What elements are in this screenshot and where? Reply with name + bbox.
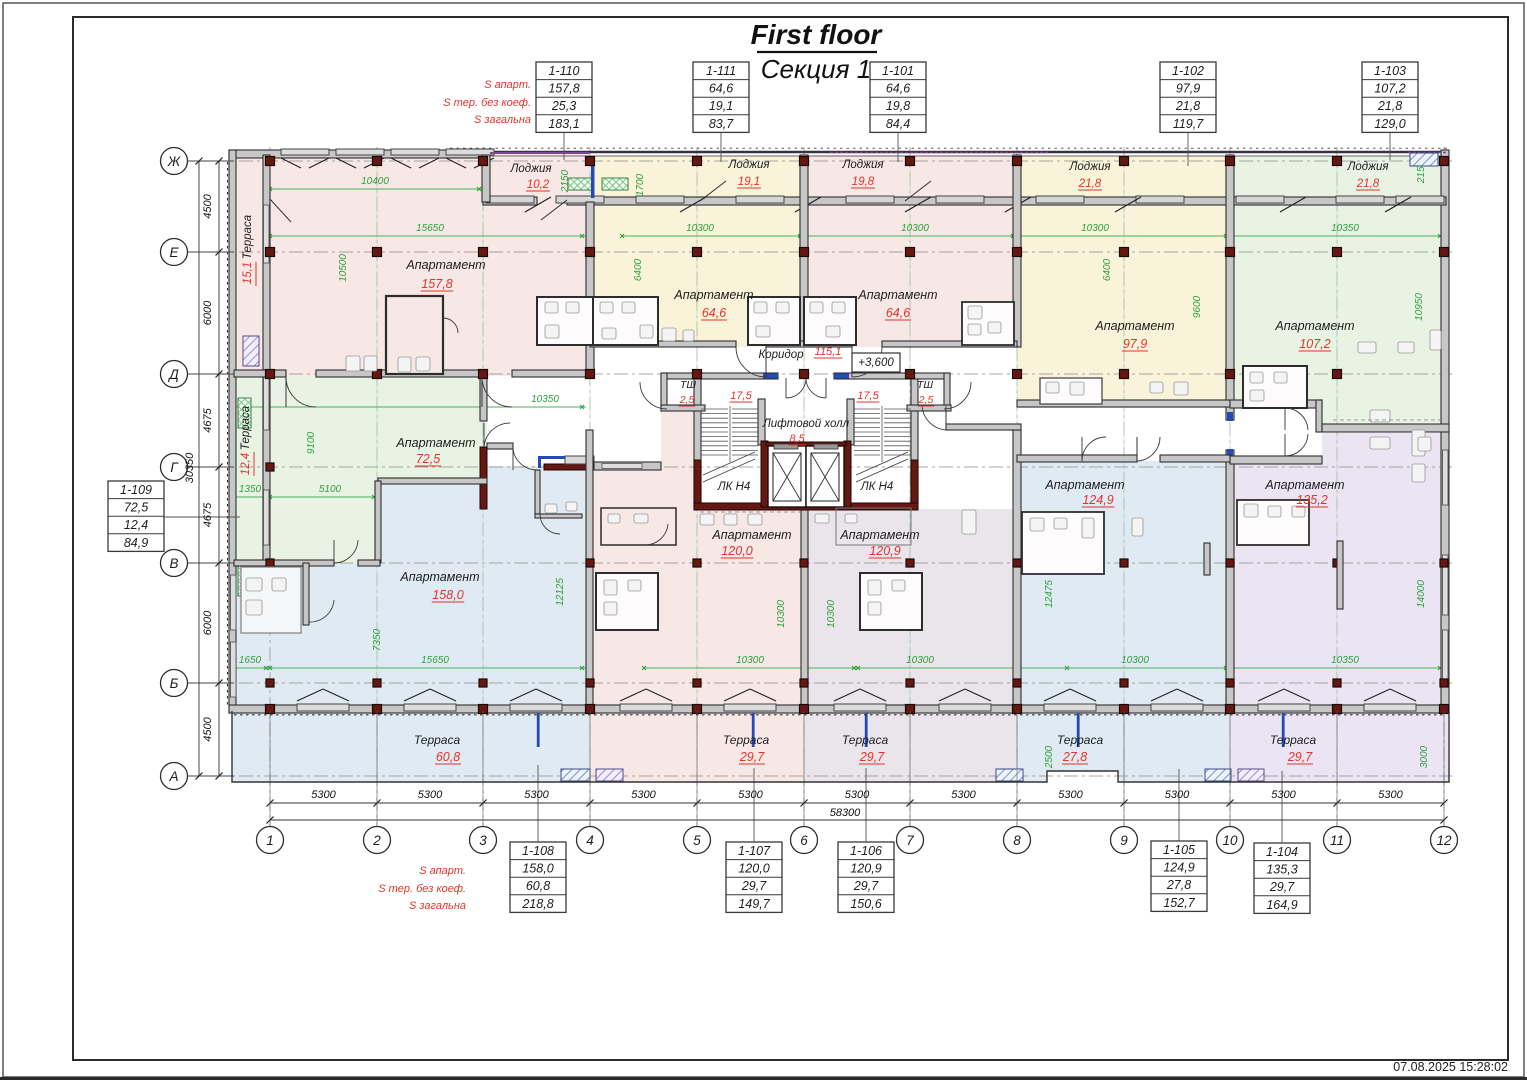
svg-text:120,9: 120,9 (869, 544, 900, 558)
svg-text:19,1: 19,1 (709, 99, 733, 113)
svg-text:Апартамент: Апартамент (395, 436, 475, 450)
svg-text:12475: 12475 (1044, 580, 1055, 608)
svg-text:Терраса: Терраса (242, 215, 254, 259)
svg-text:10500: 10500 (338, 254, 349, 282)
svg-text:12125: 12125 (555, 578, 566, 606)
svg-text:8,5: 8,5 (789, 433, 805, 445)
svg-text:12,4: 12,4 (124, 518, 148, 532)
svg-text:1-103: 1-103 (1374, 64, 1406, 78)
svg-text:107,2: 107,2 (1299, 337, 1330, 351)
svg-text:158,0: 158,0 (432, 588, 463, 602)
svg-text:10350: 10350 (1331, 223, 1359, 234)
svg-text:Лоджия: Лоджия (1346, 161, 1388, 173)
svg-text:5300: 5300 (845, 789, 870, 801)
svg-text:5300: 5300 (1378, 789, 1403, 801)
svg-text:3000: 3000 (1419, 745, 1430, 768)
svg-text:ЛК Н4: ЛК Н4 (717, 481, 751, 493)
svg-text:S тер. без коеф.: S тер. без коеф. (378, 883, 466, 895)
svg-text:7350: 7350 (372, 628, 383, 651)
svg-text:1-111: 1-111 (706, 64, 736, 78)
svg-text:60,8: 60,8 (436, 750, 460, 764)
svg-text:Апартамент: Апартамент (1094, 319, 1174, 333)
svg-text:2: 2 (372, 833, 381, 848)
svg-text:ТШ: ТШ (917, 379, 933, 391)
svg-text:135,2: 135,2 (1296, 493, 1327, 507)
svg-text:8: 8 (1013, 833, 1021, 848)
svg-text:Апартамент: Апартамент (839, 528, 919, 542)
svg-text:1-102: 1-102 (1172, 64, 1204, 78)
svg-text:1700: 1700 (635, 173, 646, 196)
svg-text:Е: Е (169, 245, 179, 260)
svg-text:4675: 4675 (202, 407, 214, 432)
svg-text:5300: 5300 (1271, 789, 1296, 801)
svg-text:4500: 4500 (202, 716, 214, 741)
svg-text:S апарт.: S апарт. (419, 865, 466, 877)
svg-text:Ж: Ж (167, 154, 182, 169)
svg-text:10300: 10300 (1121, 655, 1149, 666)
svg-text:12,4: 12,4 (240, 453, 252, 475)
svg-text:10300: 10300 (826, 600, 837, 628)
svg-text:1-109: 1-109 (120, 483, 152, 497)
svg-text:119,7: 119,7 (1173, 117, 1204, 131)
svg-text:4: 4 (586, 833, 594, 848)
svg-text:72,5: 72,5 (124, 501, 148, 515)
svg-text:5300: 5300 (631, 789, 656, 801)
svg-text:First floor: First floor (751, 19, 884, 50)
svg-text:S апарт.: S апарт. (484, 79, 531, 91)
svg-text:21,8: 21,8 (1175, 99, 1200, 113)
svg-text:84,9: 84,9 (124, 536, 148, 550)
svg-text:5: 5 (693, 833, 701, 848)
svg-text:27,8: 27,8 (1062, 750, 1087, 764)
svg-text:5300: 5300 (524, 789, 549, 801)
svg-text:158,0: 158,0 (522, 862, 553, 876)
svg-text:183,1: 183,1 (548, 117, 579, 131)
svg-text:1-105: 1-105 (1163, 843, 1195, 857)
svg-text:Апартамент: Апартамент (857, 288, 937, 302)
svg-text:ТШ: ТШ (680, 379, 696, 391)
svg-text:19,8: 19,8 (852, 176, 875, 188)
svg-text:Апартамент: Апартамент (673, 288, 753, 302)
svg-text:17,5: 17,5 (730, 390, 752, 402)
svg-text:2500: 2500 (1044, 745, 1055, 769)
svg-text:Д: Д (167, 367, 179, 382)
svg-text:29,7: 29,7 (1269, 880, 1295, 894)
svg-text:5300: 5300 (311, 789, 336, 801)
svg-text:29,7: 29,7 (739, 750, 765, 764)
svg-text:15650: 15650 (421, 655, 449, 666)
svg-text:19,1: 19,1 (738, 176, 760, 188)
svg-text:1: 1 (266, 833, 274, 848)
svg-text:135,3: 135,3 (1266, 863, 1297, 877)
svg-text:64,6: 64,6 (702, 306, 726, 320)
svg-text:72,5: 72,5 (416, 452, 440, 466)
svg-text:120,9: 120,9 (850, 862, 881, 876)
svg-text:Лоджия: Лоджия (1068, 161, 1110, 173)
svg-text:2,5: 2,5 (918, 394, 934, 406)
svg-text:10350: 10350 (531, 394, 559, 405)
svg-text:Лоджия: Лоджия (727, 159, 769, 171)
svg-text:+3,600: +3,600 (858, 357, 894, 369)
svg-text:5300: 5300 (738, 789, 763, 801)
svg-text:1350: 1350 (239, 484, 262, 495)
svg-text:10300: 10300 (906, 655, 934, 666)
svg-text:115,1: 115,1 (815, 346, 842, 358)
svg-text:Коридор: Коридор (758, 349, 804, 361)
svg-text:11: 11 (1330, 833, 1344, 848)
svg-text:10300: 10300 (776, 600, 787, 628)
svg-text:Терраса: Терраса (723, 733, 770, 747)
svg-text:15,1: 15,1 (242, 262, 254, 284)
svg-text:6: 6 (800, 833, 808, 848)
svg-text:Терраса: Терраса (1270, 733, 1317, 747)
svg-text:15650: 15650 (416, 223, 444, 234)
svg-text:S загальна: S загальна (474, 114, 531, 126)
svg-text:9: 9 (1120, 833, 1128, 848)
svg-text:84,4: 84,4 (886, 117, 910, 131)
svg-text:9100: 9100 (306, 431, 317, 454)
svg-text:5300: 5300 (1165, 789, 1190, 801)
svg-text:64,6: 64,6 (886, 306, 910, 320)
svg-text:164,9: 164,9 (1266, 898, 1297, 912)
svg-text:7: 7 (906, 833, 914, 848)
svg-text:1-101: 1-101 (882, 64, 914, 78)
svg-text:129,0: 129,0 (1374, 117, 1405, 131)
svg-text:152,7: 152,7 (1163, 896, 1195, 910)
svg-text:S загальна: S загальна (409, 900, 466, 912)
svg-text:218,8: 218,8 (521, 897, 553, 911)
svg-text:64,6: 64,6 (886, 82, 910, 96)
svg-text:29,7: 29,7 (859, 750, 885, 764)
svg-text:120,0: 120,0 (721, 544, 752, 558)
svg-text:27,8: 27,8 (1166, 878, 1191, 892)
svg-text:150,6: 150,6 (850, 897, 881, 911)
svg-text:10400: 10400 (361, 176, 389, 187)
svg-text:30350: 30350 (184, 452, 196, 483)
svg-text:Апартамент: Апартамент (1044, 478, 1124, 492)
svg-text:157,8: 157,8 (548, 82, 579, 96)
svg-text:Апартамент: Апартамент (1274, 319, 1354, 333)
svg-text:Терраса: Терраса (414, 733, 461, 747)
svg-text:124,9: 124,9 (1082, 493, 1113, 507)
svg-text:12: 12 (1436, 833, 1452, 848)
svg-text:Апартамент: Апартамент (711, 528, 791, 542)
svg-text:4500: 4500 (202, 193, 214, 218)
svg-text:10300: 10300 (686, 223, 714, 234)
svg-text:5300: 5300 (1058, 789, 1083, 801)
svg-text:17,5: 17,5 (857, 390, 879, 402)
svg-text:58300: 58300 (830, 807, 861, 819)
svg-text:97,9: 97,9 (1176, 82, 1200, 96)
svg-text:157,8: 157,8 (421, 277, 452, 291)
svg-text:ЛК Н4: ЛК Н4 (860, 481, 894, 493)
svg-text:25,3: 25,3 (551, 99, 576, 113)
svg-text:10,2: 10,2 (527, 179, 550, 191)
svg-text:10300: 10300 (736, 655, 764, 666)
svg-text:5300: 5300 (951, 789, 976, 801)
svg-text:1-107: 1-107 (738, 844, 771, 858)
svg-text:64,6: 64,6 (709, 82, 733, 96)
svg-text:83,7: 83,7 (709, 117, 734, 131)
svg-text:3: 3 (479, 833, 487, 848)
svg-text:1-108: 1-108 (522, 844, 554, 858)
svg-text:6000: 6000 (202, 300, 214, 325)
svg-text:S тер. без коеф.: S тер. без коеф. (443, 97, 531, 109)
svg-text:14000: 14000 (1416, 580, 1427, 608)
svg-text:Лоджия: Лоджия (841, 159, 883, 171)
svg-text:Апартамент: Апартамент (1264, 478, 1344, 492)
svg-text:10350: 10350 (1331, 655, 1359, 666)
svg-text:6400: 6400 (633, 258, 644, 281)
svg-text:1-106: 1-106 (850, 844, 882, 858)
svg-text:97,9: 97,9 (1123, 337, 1147, 351)
svg-text:124,9: 124,9 (1163, 861, 1194, 875)
svg-text:1-110: 1-110 (548, 64, 579, 78)
svg-text:07.08.2025 15:28:02: 07.08.2025 15:28:02 (1393, 1060, 1508, 1074)
svg-text:Терраса: Терраса (240, 406, 252, 450)
svg-text:6000: 6000 (202, 610, 214, 635)
svg-text:29,7: 29,7 (741, 879, 767, 893)
svg-text:Апартамент: Апартамент (399, 570, 479, 584)
svg-text:Секция 1: Секция 1 (761, 54, 871, 84)
svg-text:2,5: 2,5 (679, 394, 695, 406)
svg-text:10: 10 (1222, 833, 1238, 848)
svg-text:19,8: 19,8 (886, 99, 910, 113)
svg-text:4675: 4675 (202, 502, 214, 527)
svg-text:5300: 5300 (418, 789, 443, 801)
svg-text:Лоджия: Лоджия (509, 163, 551, 175)
svg-text:Апартамент: Апартамент (405, 258, 485, 272)
svg-text:21,8: 21,8 (1356, 178, 1380, 190)
svg-text:107,2: 107,2 (1374, 82, 1405, 96)
svg-text:9600: 9600 (1192, 295, 1203, 318)
svg-text:29,7: 29,7 (853, 879, 879, 893)
svg-text:Б: Б (170, 676, 179, 691)
svg-text:21,8: 21,8 (1377, 99, 1402, 113)
svg-text:21,8: 21,8 (1078, 178, 1102, 190)
svg-text:5100: 5100 (319, 484, 342, 495)
svg-text:10300: 10300 (1081, 223, 1109, 234)
svg-text:10950: 10950 (1414, 293, 1425, 321)
svg-text:Терраса: Терраса (842, 733, 889, 747)
svg-text:60,8: 60,8 (526, 879, 550, 893)
svg-text:10300: 10300 (901, 223, 929, 234)
svg-text:1650: 1650 (239, 655, 262, 666)
svg-text:А: А (168, 769, 178, 784)
svg-text:1-104: 1-104 (1266, 845, 1298, 859)
svg-text:120,0: 120,0 (738, 862, 769, 876)
svg-text:149,7: 149,7 (738, 897, 770, 911)
svg-text:В: В (169, 556, 178, 571)
svg-text:Лифтовой холл: Лифтовой холл (762, 418, 850, 430)
svg-text:29,7: 29,7 (1287, 750, 1313, 764)
svg-text:Терраса: Терраса (1057, 733, 1104, 747)
svg-text:6400: 6400 (1102, 258, 1113, 281)
